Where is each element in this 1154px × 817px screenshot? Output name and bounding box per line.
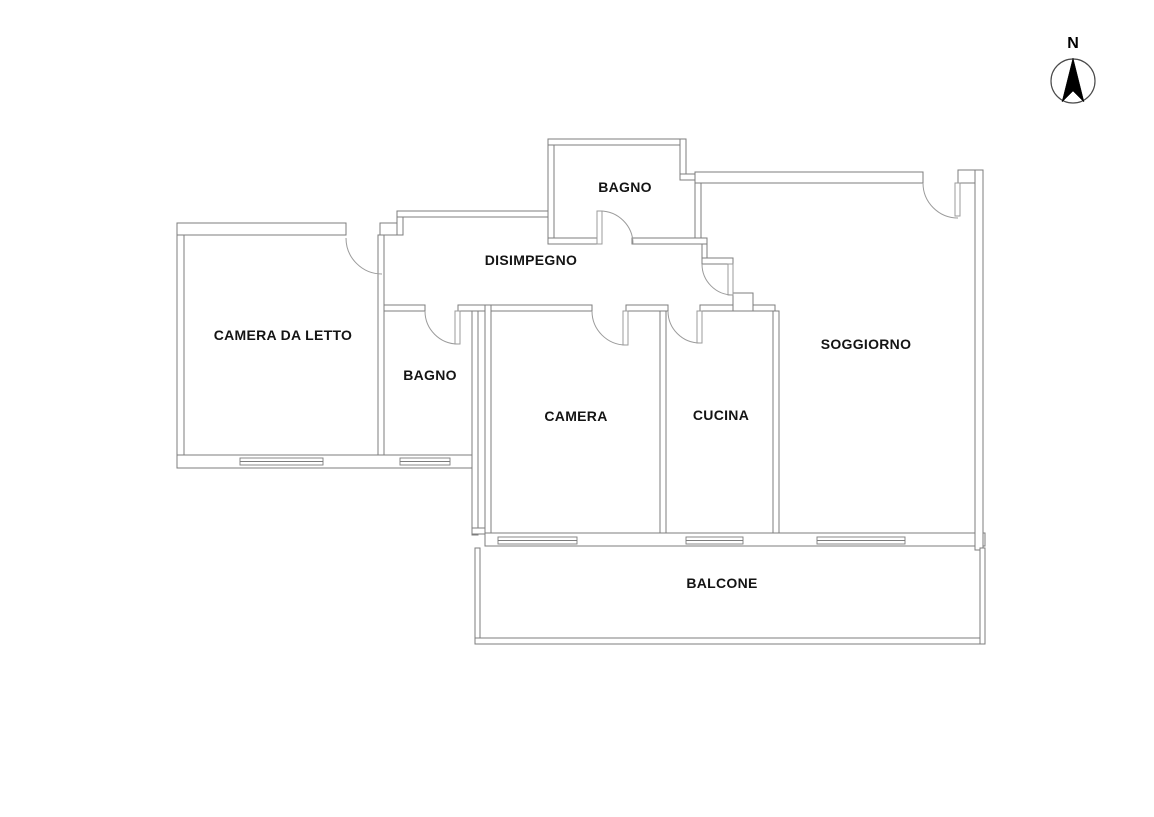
wall-segment	[660, 311, 666, 533]
wall-segment	[702, 258, 733, 264]
room-label-bagno-top: BAGNO	[598, 179, 652, 195]
wall-segment	[695, 172, 923, 183]
wall-segment	[975, 170, 983, 550]
door-swing-arc	[668, 311, 700, 343]
door-swing-arc	[425, 311, 458, 344]
wall-segment	[177, 223, 346, 235]
wall-segment	[548, 238, 600, 244]
floor-plan-page: CAMERA DA LETTO BAGNO CAMERA CUCINA SOGG…	[0, 0, 1154, 817]
doors	[346, 183, 960, 345]
north-label: N	[1067, 35, 1079, 52]
door-leaf	[623, 311, 628, 345]
room-label-camera-da-letto: CAMERA DA LETTO	[214, 327, 353, 343]
wall-segment	[378, 235, 384, 455]
windows	[240, 458, 905, 544]
balcony-rail	[475, 638, 985, 644]
door-swing-arc	[592, 311, 626, 345]
wall-segment	[626, 305, 668, 311]
wall-segment	[472, 311, 478, 535]
room-label-bagno: BAGNO	[403, 367, 457, 383]
door-leaf	[728, 264, 733, 295]
door-swing-arc	[346, 238, 382, 274]
north-arrow-icon	[1062, 58, 1084, 102]
wall-segment	[695, 174, 701, 244]
room-label-camera: CAMERA	[544, 408, 607, 424]
wall-segment	[632, 238, 707, 244]
room-label-soggiorno: SOGGIORNO	[821, 336, 912, 352]
walls	[177, 139, 985, 644]
door-swing-arc	[600, 211, 633, 244]
wall-segment	[548, 139, 686, 145]
wall-segment	[773, 311, 779, 533]
wall-segment	[177, 223, 184, 468]
floor-plan-drawing: CAMERA DA LETTO BAGNO CAMERA CUCINA SOGG…	[0, 0, 1154, 817]
door-leaf	[955, 183, 960, 216]
room-label-disimpegno: DISIMPEGNO	[485, 252, 577, 268]
door-leaf	[597, 211, 602, 244]
balcony-rail	[980, 548, 985, 644]
door-leaf	[455, 311, 460, 344]
wall-segment	[733, 293, 753, 311]
wall-segment	[397, 211, 554, 217]
room-label-cucina: CUCINA	[693, 407, 749, 423]
wall-segment	[548, 139, 554, 244]
balcony-rail	[475, 548, 480, 643]
north-compass: N	[1051, 35, 1095, 103]
wall-segment	[458, 305, 592, 311]
wall-segment	[384, 305, 425, 311]
wall-segment	[485, 305, 491, 533]
room-label-balcone: BALCONE	[686, 575, 757, 591]
door-swing-arc	[923, 183, 958, 218]
door-leaf	[697, 311, 702, 343]
